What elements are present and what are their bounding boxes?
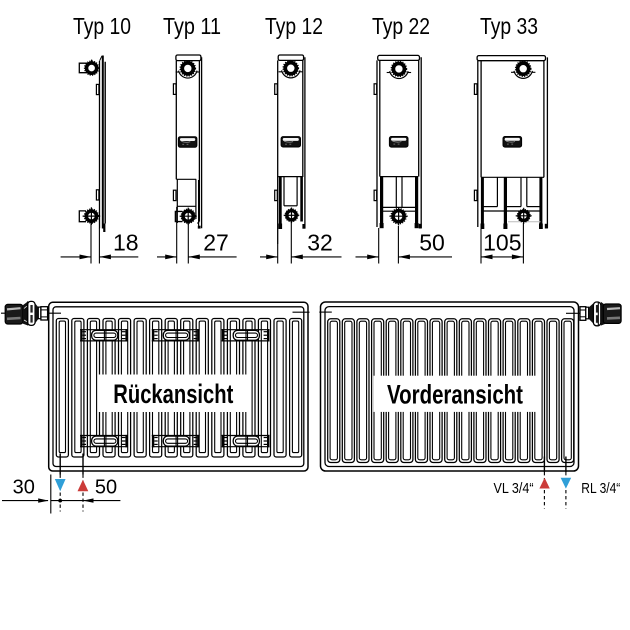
svg-text:Vorderansicht: Vorderansicht [387, 379, 523, 409]
svg-text:Rückansicht: Rückansicht [113, 379, 233, 409]
svg-text:Typ 22: Typ 22 [372, 13, 430, 39]
svg-text:30: 30 [13, 476, 35, 498]
svg-text:105: 105 [483, 230, 521, 256]
svg-text:RL 3/4“: RL 3/4“ [581, 481, 620, 497]
svg-text:Typ 12: Typ 12 [265, 13, 323, 39]
svg-text:18: 18 [113, 230, 139, 256]
svg-text:50: 50 [95, 476, 117, 498]
svg-text:Typ 33: Typ 33 [480, 13, 538, 39]
svg-text:32: 32 [307, 230, 333, 256]
svg-text:27: 27 [203, 230, 229, 256]
svg-text:Typ 11: Typ 11 [163, 13, 221, 39]
svg-text:50: 50 [419, 230, 445, 256]
svg-text:Typ 10: Typ 10 [73, 13, 131, 39]
svg-text:VL 3/4“: VL 3/4“ [494, 481, 534, 497]
